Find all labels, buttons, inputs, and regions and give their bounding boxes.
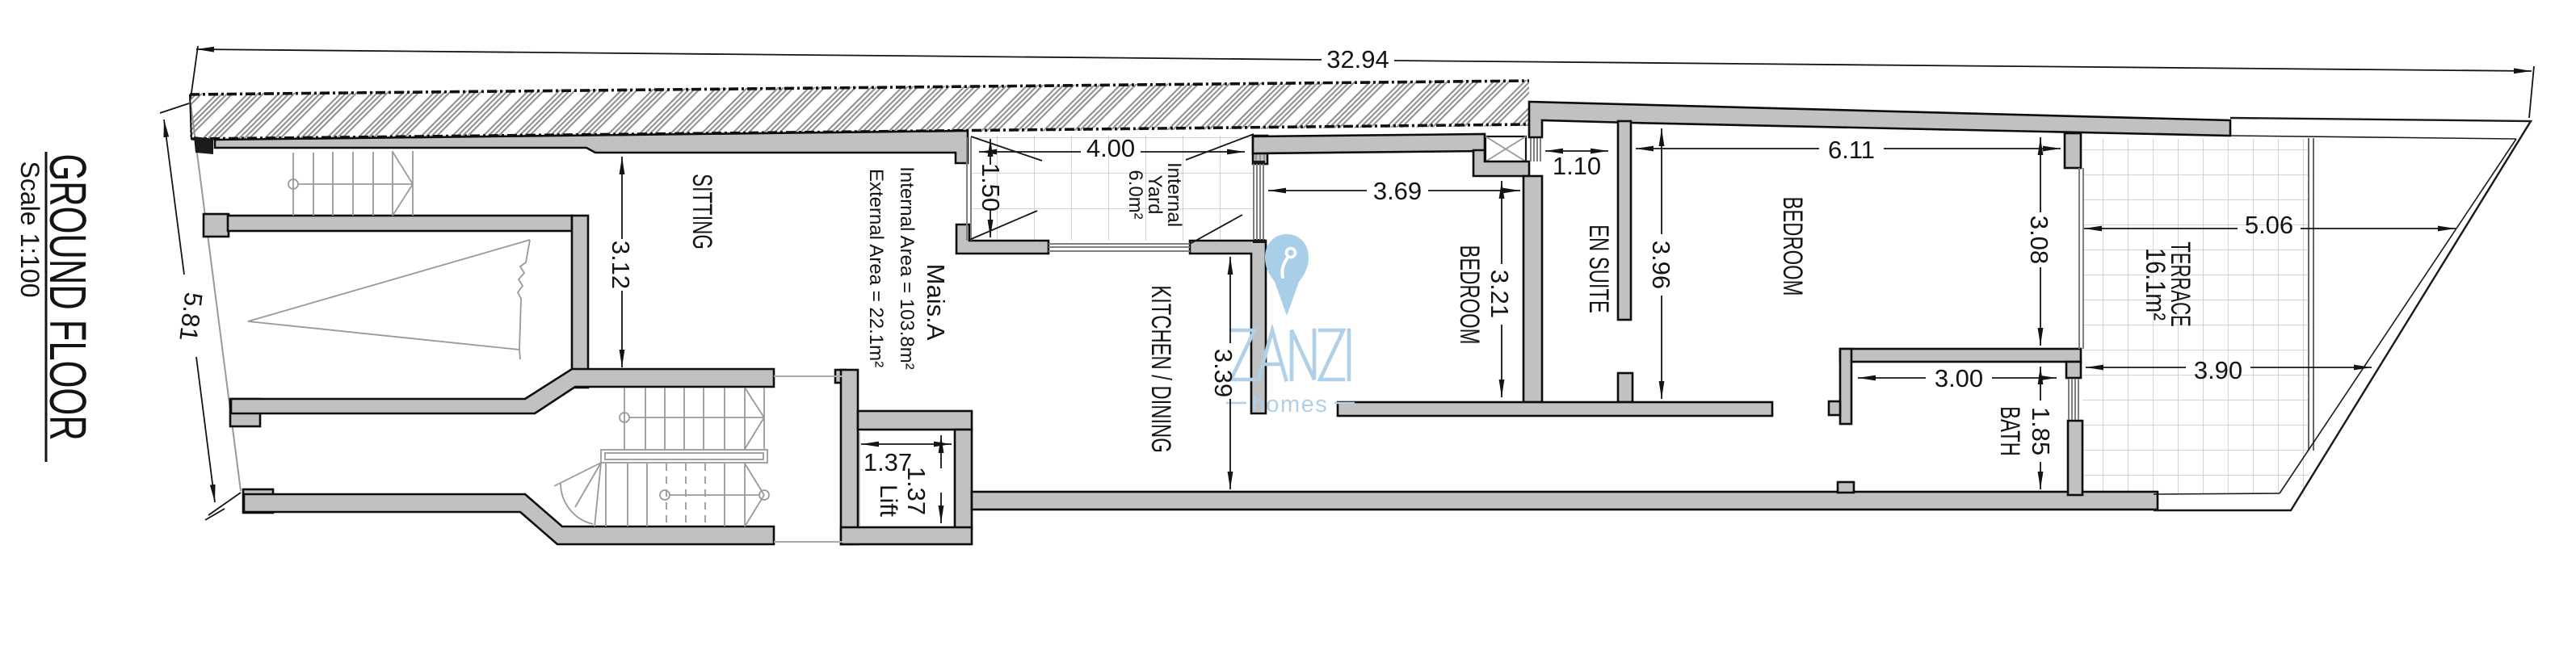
svg-text:KITCHEN / DINING: KITCHEN / DINING <box>1145 285 1176 452</box>
svg-text:1.50: 1.50 <box>977 163 1005 212</box>
svg-text:3.39: 3.39 <box>1209 349 1238 397</box>
svg-text:Scale 1:100: Scale 1:100 <box>15 161 44 297</box>
svg-text:4.00: 4.00 <box>1086 134 1135 162</box>
svg-text:3.96: 3.96 <box>1647 241 1675 289</box>
svg-text:1.37: 1.37 <box>902 467 931 515</box>
svg-text:homes: homes <box>1252 392 1329 417</box>
svg-text:3.00: 3.00 <box>1935 364 1983 392</box>
svg-text:3.21: 3.21 <box>1486 270 1514 318</box>
svg-text:GROUND FLOOR: GROUND FLOOR <box>39 153 98 440</box>
svg-text:Mais.A: Mais.A <box>922 264 950 341</box>
svg-text:5.81: 5.81 <box>174 291 208 342</box>
svg-text:3.69: 3.69 <box>1373 177 1422 205</box>
svg-text:Internal: Internal <box>1163 162 1185 227</box>
svg-text:32.94: 32.94 <box>1326 45 1389 73</box>
svg-text:Yard: Yard <box>1144 175 1166 215</box>
svg-text:16.1m²: 16.1m² <box>2140 248 2171 321</box>
svg-text:6.11: 6.11 <box>1828 136 1875 164</box>
svg-text:3.12: 3.12 <box>607 241 635 289</box>
svg-text:3.08: 3.08 <box>2025 216 2053 264</box>
svg-text:1.10: 1.10 <box>1553 152 1601 180</box>
svg-text:Internal Area = 103.8m²: Internal Area = 103.8m² <box>896 166 918 369</box>
svg-text:BEDROOM: BEDROOM <box>1454 245 1485 345</box>
svg-text:6.0m²: 6.0m² <box>1124 170 1146 219</box>
svg-text:EN SUITE: EN SUITE <box>1583 224 1614 313</box>
svg-text:1.85: 1.85 <box>2027 407 2055 455</box>
svg-text:3.90: 3.90 <box>2194 356 2242 384</box>
svg-text:Lift: Lift <box>875 484 901 518</box>
svg-text:5.06: 5.06 <box>2245 211 2293 239</box>
svg-text:External Area = 22.1m²: External Area = 22.1m² <box>865 169 887 367</box>
svg-text:BATH: BATH <box>1994 406 2025 456</box>
svg-text:BEDROOM: BEDROOM <box>1777 197 1808 296</box>
svg-text:SITTING: SITTING <box>687 174 717 250</box>
